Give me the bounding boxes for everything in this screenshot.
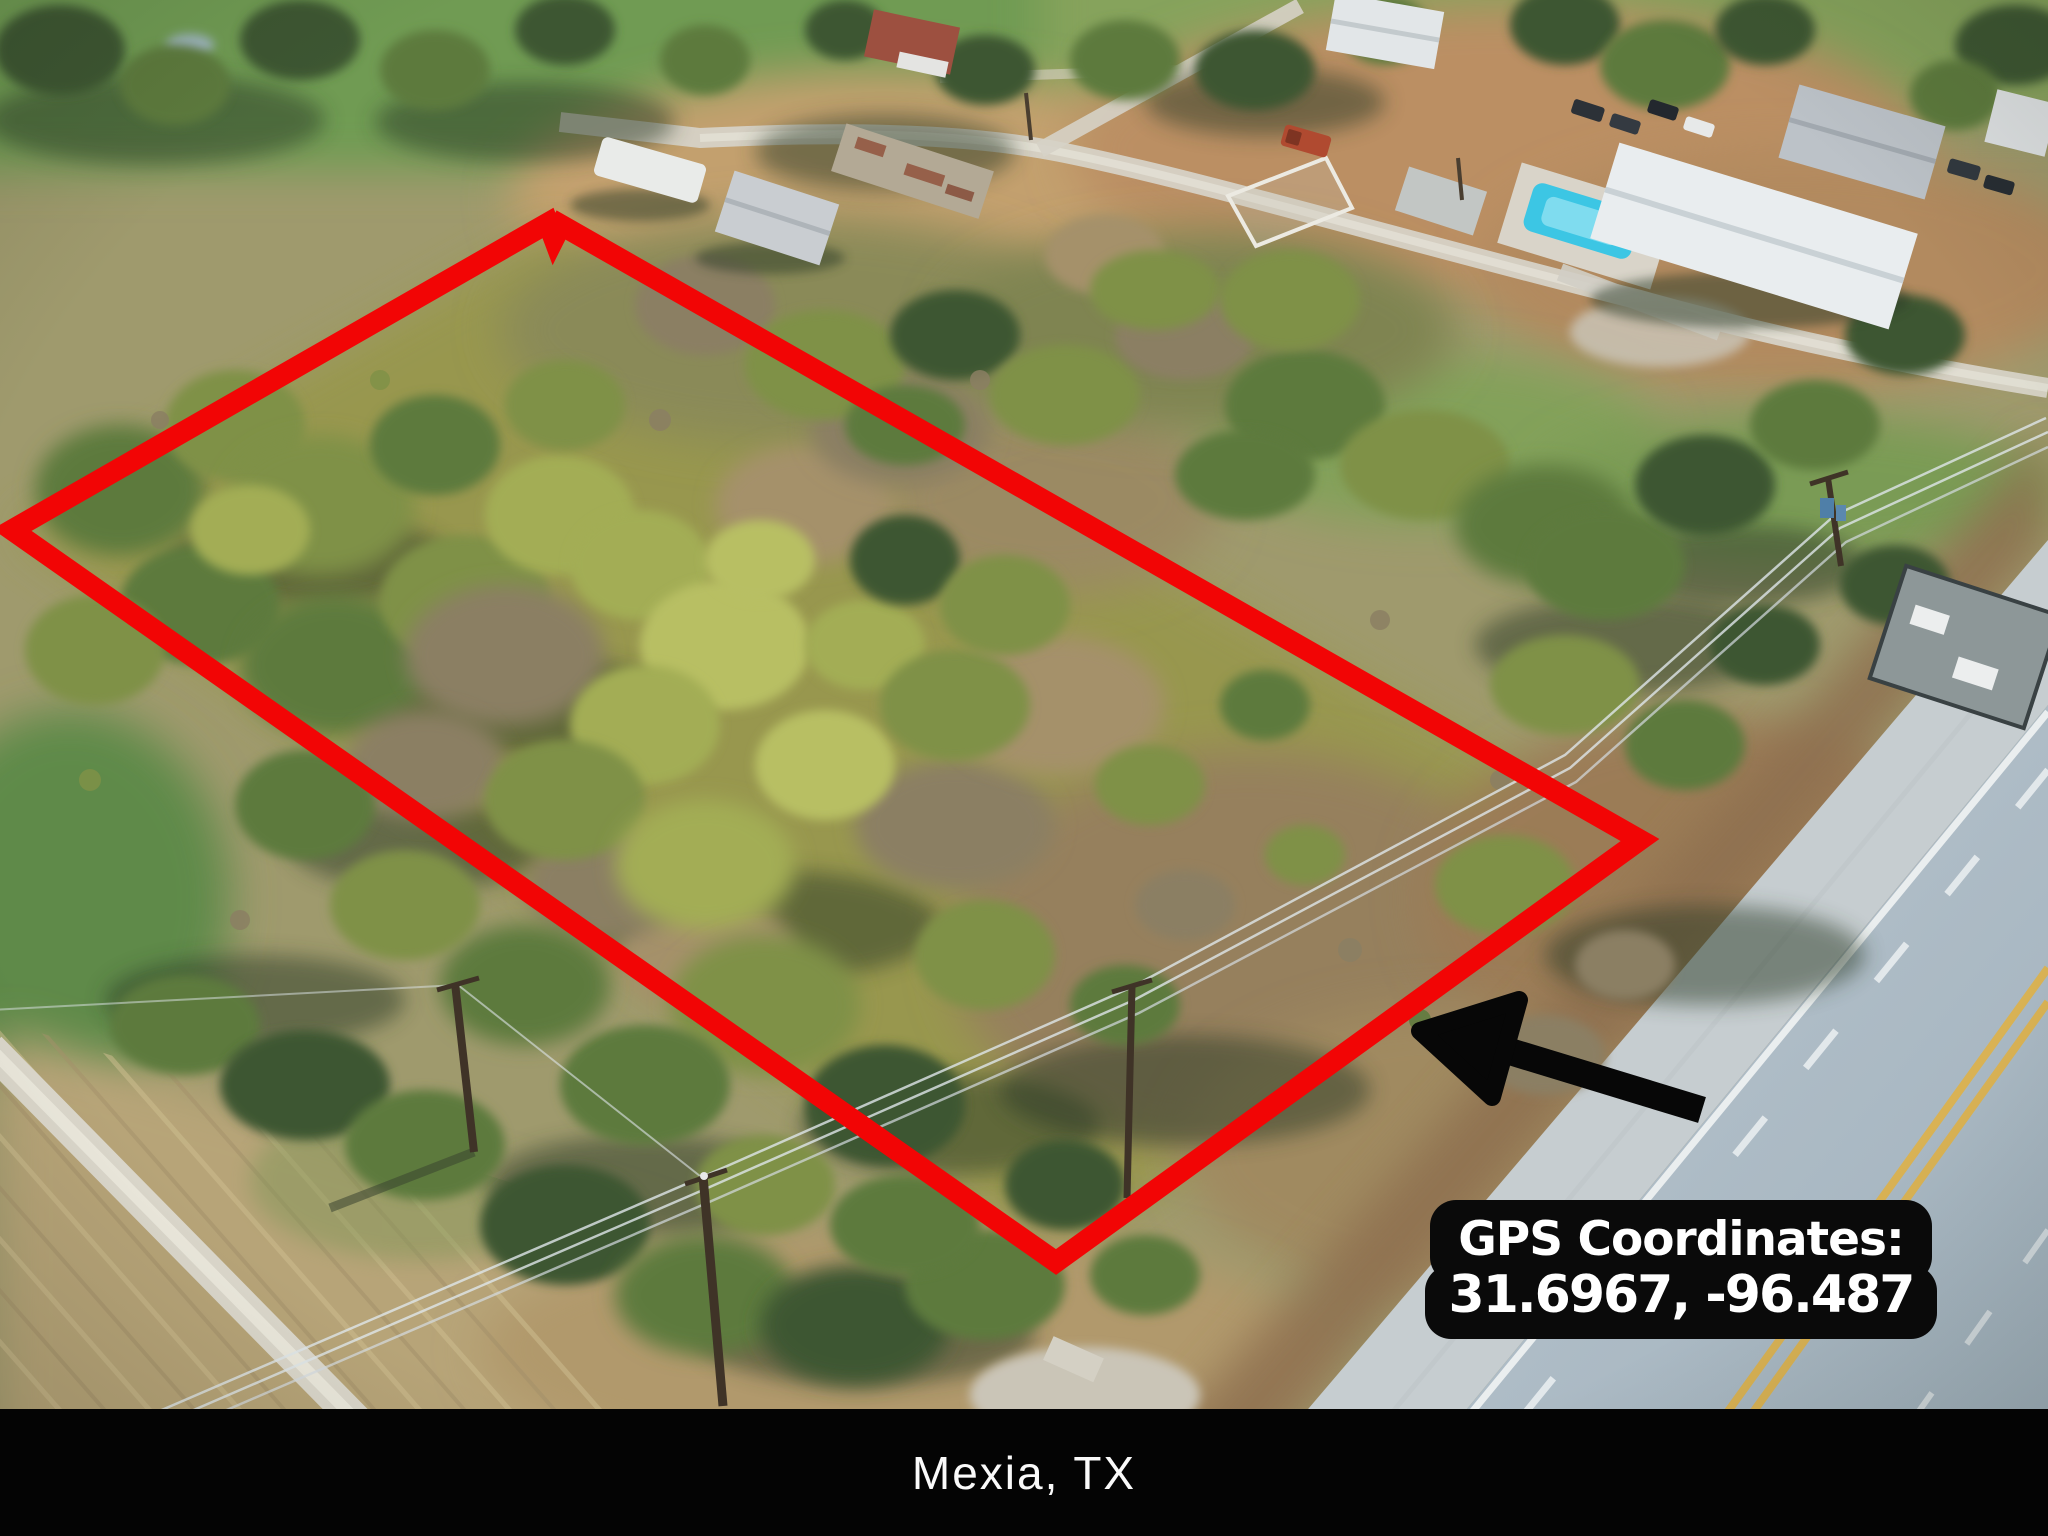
listing-image: GPS Coordinates: 31.6967, -96.487 Mexia,… (0, 0, 2048, 1536)
location-bar-text: Mexia, TX (912, 1446, 1136, 1500)
gps-coordinates-label: GPS Coordinates: 31.6967, -96.487 (1395, 1200, 1967, 1339)
location-bar: Mexia, TX (0, 1409, 2048, 1536)
gps-label-coordinates: 31.6967, -96.487 (1425, 1265, 1938, 1339)
